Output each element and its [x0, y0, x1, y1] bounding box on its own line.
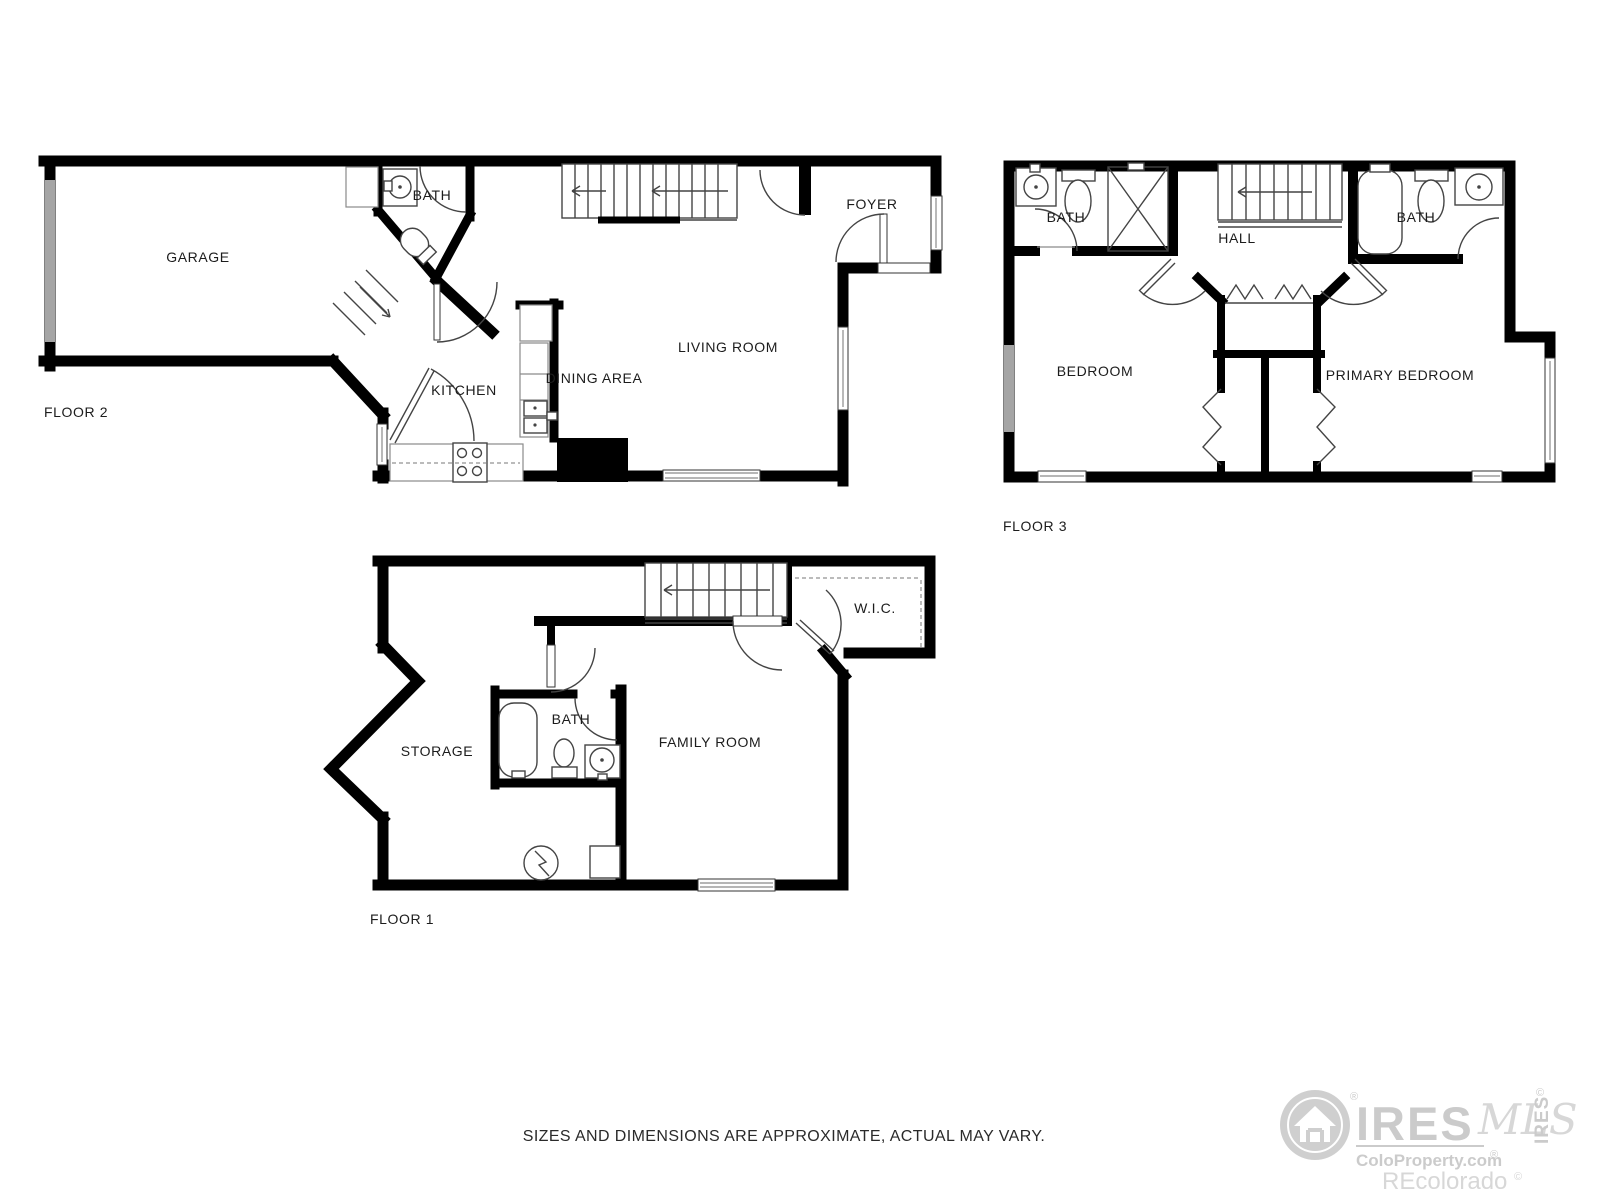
room-label-kitchen: KITCHEN [431, 382, 497, 398]
floor2-plan: GARAGE BATH KITCHEN DINING AREA LIVING R… [44, 161, 942, 482]
storage-hall-door [547, 645, 595, 692]
floor3-title: FLOOR 3 [1003, 518, 1067, 534]
floor1-title: FLOOR 1 [370, 911, 434, 927]
floor3-bedroom-doors [1139, 259, 1387, 304]
watermark: ® IRES MLS ColoProperty.com ® REcolorado… [1280, 1087, 1578, 1195]
room-label-family-room: FAMILY ROOM [659, 734, 762, 750]
room-label-bedroom: BEDROOM [1057, 363, 1134, 379]
room-label-floor1-bath: BATH [552, 711, 591, 727]
floor2-title: FLOOR 2 [44, 404, 108, 420]
watermark-recolorado: REcolorado [1382, 1168, 1507, 1195]
room-label-floor3-bath-left: BATH [1047, 209, 1086, 225]
floor3-stairs-icon [1218, 164, 1342, 227]
family-room-door [733, 616, 782, 670]
floor3-plan: BATH HALL BATH BEDROOM PRIMARY BEDROOM F… [1003, 163, 1555, 534]
watermark-brand: IRES [1356, 1097, 1474, 1150]
ires-house-logo-icon [1280, 1090, 1350, 1160]
floorplan-image: GARAGE BATH KITCHEN DINING AREA LIVING R… [0, 0, 1600, 1200]
garage-utility-closet [346, 167, 378, 207]
watermark-divider [1356, 1145, 1484, 1147]
floor1-window [698, 879, 775, 891]
garage-steps-icon [333, 270, 398, 335]
watermark-site-mark: ® [1490, 1149, 1498, 1161]
room-label-wic: W.I.C. [854, 600, 896, 616]
floor2-stair-door-arc [760, 170, 805, 215]
room-label-floor3-bath-right: BATH [1397, 209, 1436, 225]
room-label-primary-bedroom: PRIMARY BEDROOM [1326, 367, 1475, 383]
watermark-recolorado-mark: © [1514, 1171, 1522, 1183]
disclaimer-text: SIZES AND DIMENSIONS ARE APPROXIMATE, AC… [523, 1128, 1045, 1145]
floor2-solid-mass [557, 438, 628, 482]
garage-window [45, 180, 55, 342]
watermark-side-brand: IRES [1532, 1096, 1553, 1144]
floor3-closet-walls-inner [1217, 299, 1321, 476]
watermark-mls: MLS [1477, 1095, 1578, 1144]
furnace-icon [524, 846, 620, 880]
room-label-foyer: FOYER [846, 196, 897, 212]
floor1-walls [331, 561, 930, 885]
room-label-living-room: LIVING ROOM [678, 339, 778, 355]
wic-area [795, 578, 921, 654]
floor3-left-bath-fixtures [1016, 163, 1168, 251]
floor2-stairs-icon [562, 164, 737, 220]
room-label-floor2-bath: BATH [413, 187, 452, 203]
room-label-hall: HALL [1218, 230, 1255, 246]
room-label-garage: GARAGE [166, 249, 230, 265]
room-label-dining-area: DINING AREA [546, 370, 643, 386]
floor1-plan: STORAGE BATH FAMILY ROOM W.I.C. FLOOR 1 [331, 561, 930, 927]
floor2-passage-doors [390, 282, 497, 443]
room-label-storage: STORAGE [401, 743, 473, 759]
floorplan-page: GARAGE BATH KITCHEN DINING AREA LIVING R… [0, 0, 1600, 1200]
floor1-stairs-icon [645, 563, 787, 623]
